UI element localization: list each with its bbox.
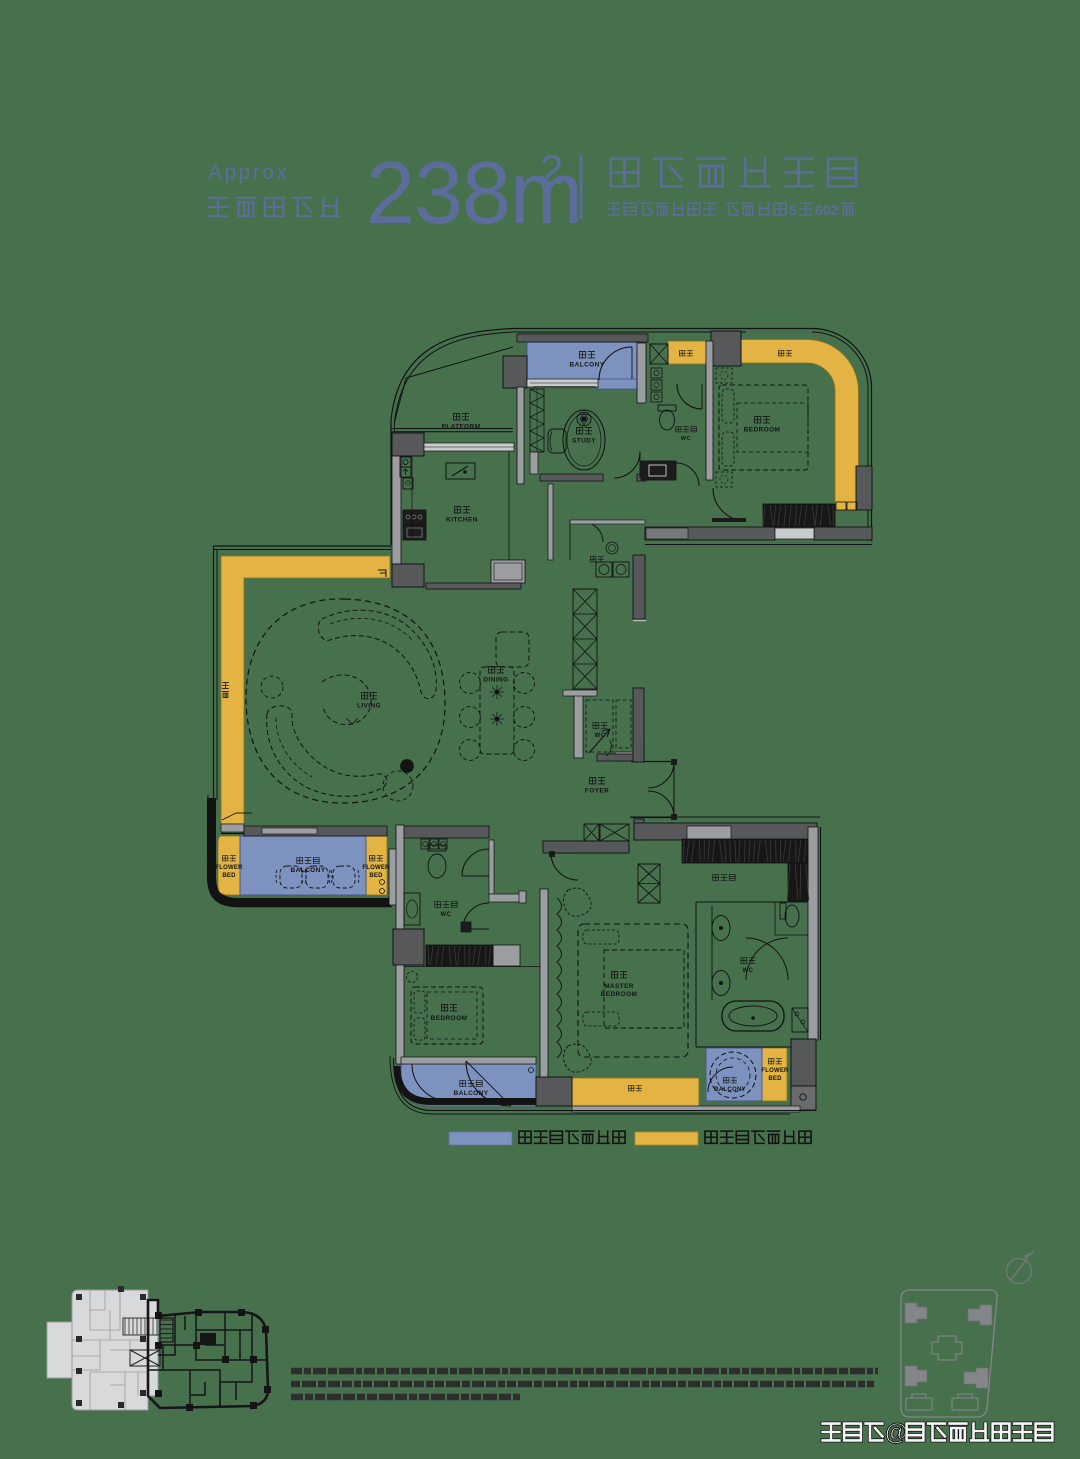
svg-text:LIVING: LIVING — [357, 703, 381, 710]
svg-text:FOYER: FOYER — [585, 788, 609, 795]
svg-text:BED: BED — [222, 873, 236, 879]
svg-text:BALCONY: BALCONY — [454, 1090, 489, 1097]
svg-text:BEDROOM: BEDROOM — [744, 427, 781, 434]
svg-text:PLATFORM: PLATFORM — [442, 424, 481, 431]
svg-text:BED: BED — [768, 1076, 782, 1082]
svg-text:WC: WC — [595, 733, 606, 739]
svg-text:WC: WC — [681, 436, 691, 442]
svg-text:BALCONY: BALCONY — [291, 867, 326, 874]
svg-text:KITCHEN: KITCHEN — [446, 517, 478, 524]
svg-text:BEDROOM: BEDROOM — [431, 1015, 468, 1022]
svg-text:BALCONY: BALCONY — [570, 362, 605, 369]
svg-text:STUDY: STUDY — [572, 438, 596, 445]
svg-text:FLOWER: FLOWER — [362, 865, 390, 871]
svg-text:2: 2 — [540, 146, 563, 193]
svg-text:WC: WC — [441, 912, 452, 918]
svg-text:WC: WC — [743, 968, 754, 974]
svg-text:BED: BED — [369, 873, 383, 879]
svg-text:FLOWER: FLOWER — [215, 865, 243, 871]
svg-text:BALCONY: BALCONY — [714, 1087, 746, 1093]
svg-text:@: @ — [885, 1419, 907, 1445]
svg-text:MASTER: MASTER — [604, 983, 634, 990]
svg-text:Approx: Approx — [208, 161, 290, 184]
svg-text:DINING: DINING — [483, 677, 508, 684]
svg-text:BEDROOM: BEDROOM — [601, 991, 638, 998]
svg-text:FLOWER: FLOWER — [761, 1068, 789, 1074]
svg-text:602: 602 — [815, 202, 839, 218]
svg-text:5: 5 — [789, 202, 797, 218]
